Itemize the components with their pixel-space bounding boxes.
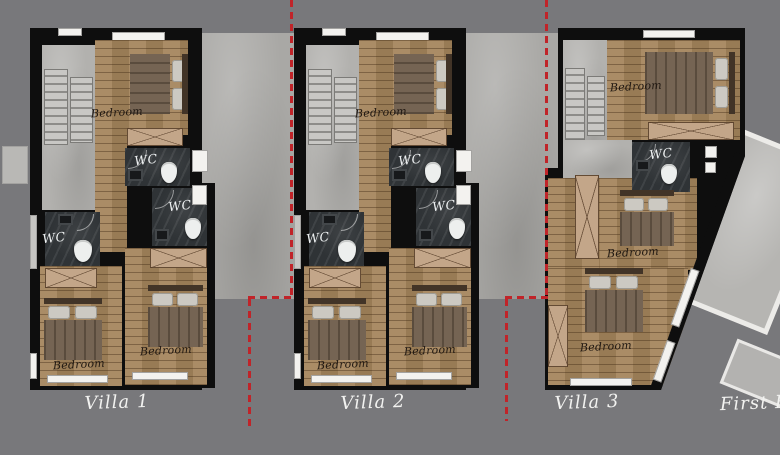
bed-pillow: [715, 86, 728, 108]
bed: [620, 190, 674, 246]
sink: [322, 214, 337, 225]
bed-headboard: [412, 285, 467, 291]
window: [30, 353, 37, 379]
bed-headboard: [585, 268, 643, 274]
bed-pillow: [312, 306, 334, 319]
closet: [309, 268, 361, 288]
window-sill: [705, 162, 716, 173]
bed-pillow: [648, 198, 668, 211]
room-label: Bedroom: [312, 356, 375, 375]
window: [396, 372, 452, 380]
villa-2-name: Villa 2: [313, 390, 434, 418]
boundary-line: [505, 299, 508, 421]
villa-1: Bedroom WC WC WC Bedroom Bedroom: [30, 28, 202, 390]
window-sill: [705, 146, 717, 158]
bed-pillow: [339, 306, 361, 319]
stairwell: [42, 45, 95, 210]
window: [132, 372, 188, 380]
villa-2: Bedroom WC WC WC Bedroom Bedroom: [294, 28, 466, 390]
bed: [585, 268, 643, 332]
window: [58, 28, 82, 36]
bed-blanket: [308, 320, 366, 360]
window: [322, 28, 346, 36]
floor-plan: Bedroom WC WC WC Bedroom Bedroom: [0, 0, 780, 455]
room-label: Bedroom: [137, 342, 196, 361]
bed-pillow: [624, 198, 644, 211]
bed-blanket: [585, 290, 643, 332]
sink: [128, 169, 143, 181]
window-sill: [192, 150, 208, 172]
boundary-line: [248, 299, 251, 429]
window: [47, 375, 108, 383]
bed: [412, 285, 467, 347]
bed-blanket: [620, 212, 674, 246]
room-label: Bedroom: [48, 356, 111, 375]
bed-pillow: [177, 293, 198, 306]
floor-caption: First Floor: [720, 390, 780, 418]
bed-headboard: [446, 54, 452, 114]
window: [311, 375, 372, 383]
villa-1-name: Villa 1: [57, 390, 178, 418]
bed-pillow: [152, 293, 173, 306]
closet: [548, 305, 568, 367]
bed-headboard: [308, 298, 366, 304]
bed-pillow: [48, 306, 70, 319]
boundary-line: [505, 296, 548, 299]
closet: [45, 268, 97, 288]
bed-pillow: [75, 306, 97, 319]
closet: [648, 122, 734, 140]
sink: [155, 229, 169, 241]
stair-flight: [565, 68, 585, 140]
left-ledge: [2, 146, 28, 184]
bed: [44, 298, 102, 360]
bed-blanket: [148, 307, 203, 347]
stairwell: [306, 45, 359, 210]
closet: [575, 175, 599, 259]
bed-pillow: [441, 293, 462, 306]
window: [643, 30, 695, 38]
bed-pillow: [589, 276, 611, 289]
bed-headboard: [620, 190, 674, 196]
hallway: [563, 140, 632, 180]
sink: [58, 214, 73, 225]
bed-headboard: [44, 298, 102, 304]
boundary-line: [545, 0, 548, 298]
closet: [150, 248, 207, 268]
bed-pillow: [715, 58, 728, 80]
closet: [391, 128, 447, 146]
bed-blanket: [412, 307, 467, 347]
boundary-line: [248, 296, 292, 299]
bed-blanket: [44, 320, 102, 360]
bed-pillow: [416, 293, 437, 306]
bed-headboard: [729, 52, 735, 114]
boundary-line: [290, 0, 293, 298]
bed-pillow: [616, 276, 638, 289]
bed-headboard: [182, 54, 188, 114]
sink: [419, 229, 433, 241]
bed: [308, 298, 366, 360]
sink: [392, 169, 407, 181]
stair-flight: [308, 69, 332, 145]
bed: [148, 285, 203, 347]
window-sill: [456, 150, 472, 172]
bed-headboard: [148, 285, 203, 291]
closet: [414, 248, 471, 268]
room-label: Bedroom: [401, 342, 460, 361]
window: [570, 378, 632, 386]
window: [294, 353, 301, 379]
stair-flight: [44, 69, 68, 145]
closet: [127, 128, 183, 146]
villa-3: Bedroom WC Bedroom Bedroom: [545, 28, 750, 390]
villa-3-name: Villa 3: [527, 390, 648, 418]
